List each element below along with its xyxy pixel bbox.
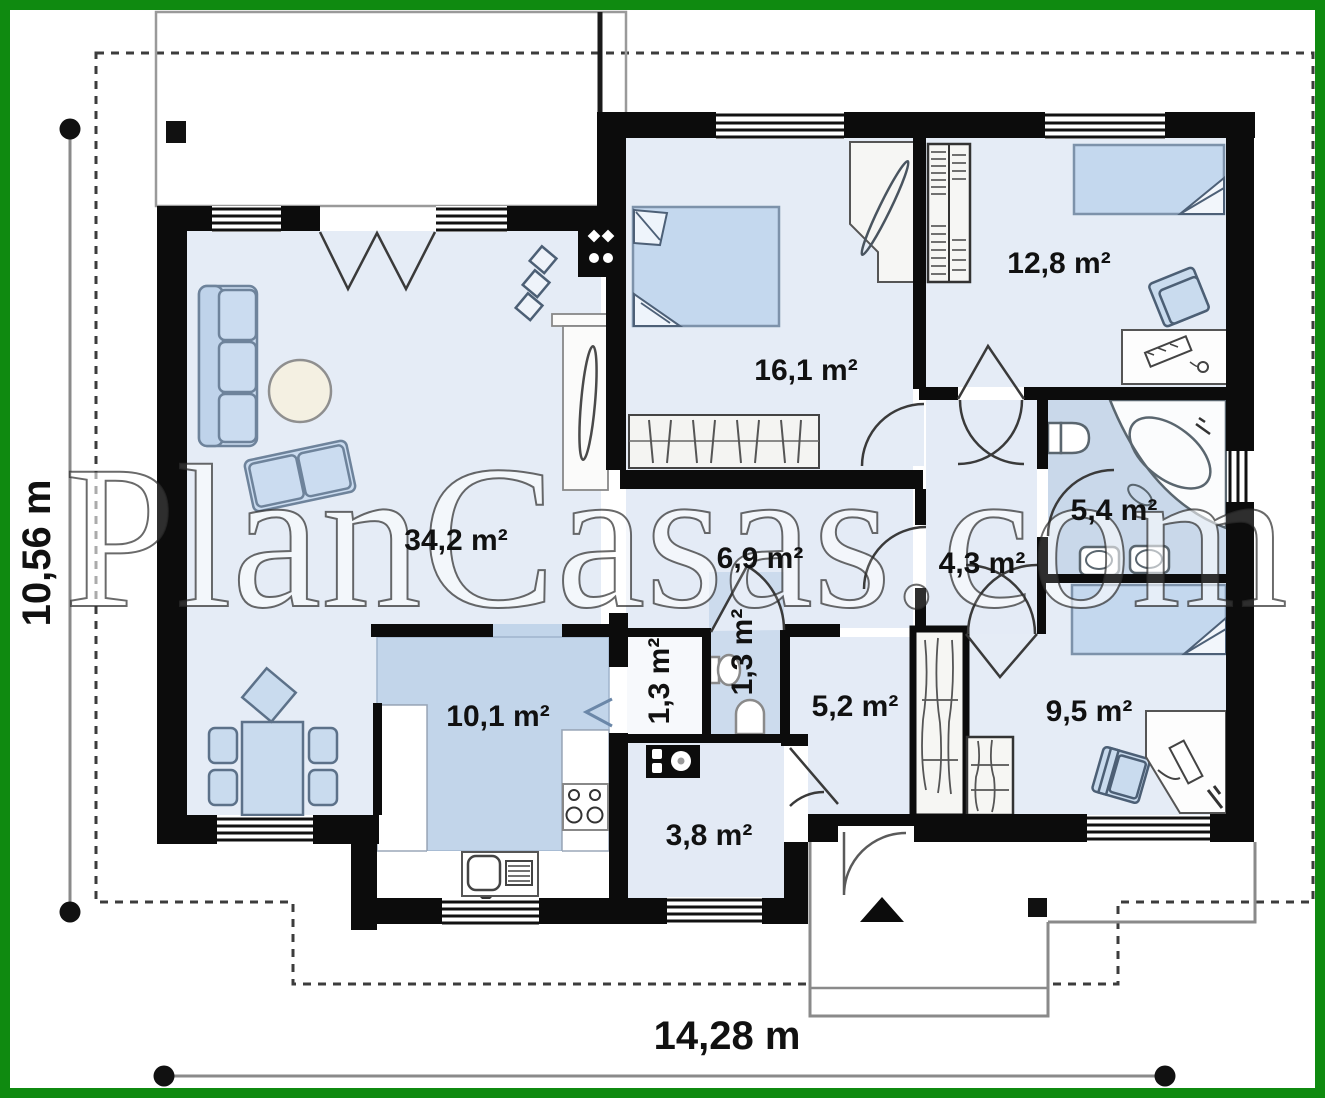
svg-text:10,1 m²: 10,1 m² bbox=[446, 700, 549, 733]
svg-text:10,56 m: 10,56 m bbox=[15, 480, 59, 627]
svg-text:12,8 m²: 12,8 m² bbox=[1007, 247, 1110, 280]
svg-text:1,3 m²: 1,3 m² bbox=[726, 609, 759, 696]
svg-text:4,3 m²: 4,3 m² bbox=[939, 547, 1026, 580]
svg-text:16,1 m²: 16,1 m² bbox=[754, 354, 857, 387]
svg-text:5,4 m²: 5,4 m² bbox=[1071, 494, 1158, 527]
svg-text:9,5 m²: 9,5 m² bbox=[1046, 695, 1133, 728]
svg-text:1,3 m²: 1,3 m² bbox=[643, 638, 676, 725]
svg-text:34,2 m²: 34,2 m² bbox=[404, 524, 507, 557]
svg-text:PlanCasas.com: PlanCasas.com bbox=[64, 424, 1288, 651]
svg-text:5,2 m²: 5,2 m² bbox=[812, 690, 899, 723]
svg-text:14,28 m: 14,28 m bbox=[654, 1014, 801, 1058]
svg-text:6,9 m²: 6,9 m² bbox=[717, 542, 804, 575]
svg-text:3,8 m²: 3,8 m² bbox=[666, 819, 753, 852]
